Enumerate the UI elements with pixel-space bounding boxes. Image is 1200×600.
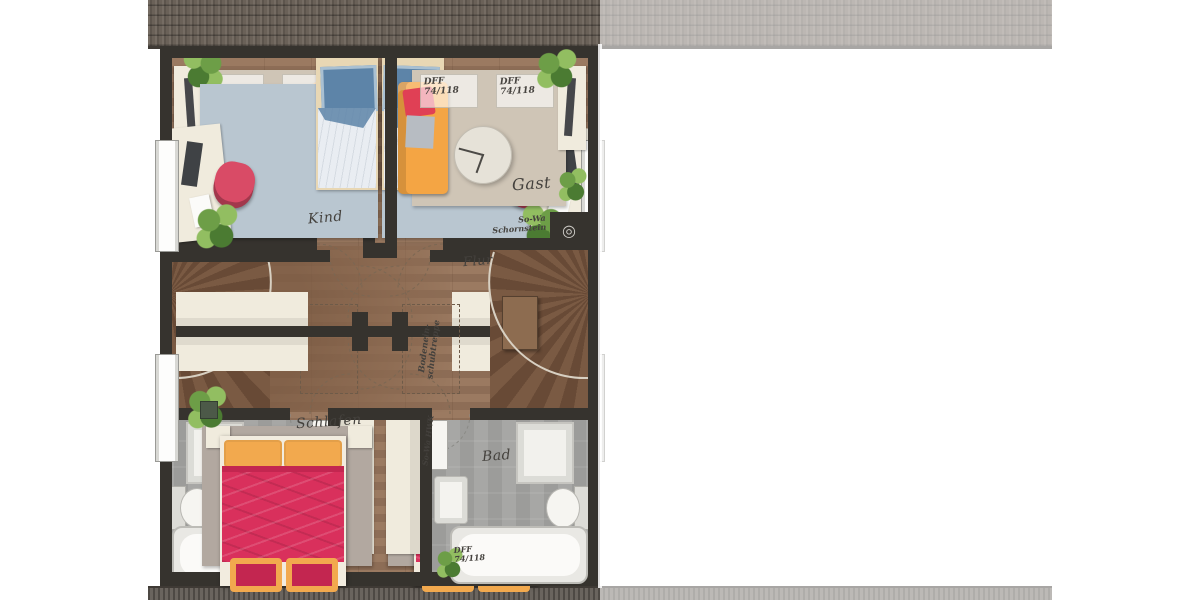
bed-duvet <box>222 466 344 562</box>
roof-window-size: 74/118 <box>424 85 459 97</box>
floor-plan-image: Bodenein- schubtreppe DFF <box>0 0 1200 600</box>
roof-window-size: 74/118 <box>500 85 535 97</box>
single-bed <box>316 58 378 190</box>
double-bed <box>220 436 346 586</box>
plant <box>558 166 590 206</box>
plant <box>194 202 244 254</box>
sofa-blanket <box>405 115 435 148</box>
wall-bad-top <box>470 408 588 420</box>
closet-cabinet-lower <box>176 337 308 371</box>
plant <box>534 48 584 92</box>
room-label-bad: Bad <box>481 447 511 465</box>
table-leg <box>459 148 485 157</box>
wall-left <box>160 46 172 586</box>
nightstand <box>348 426 372 448</box>
attic-ladder-outline <box>300 304 358 394</box>
potted-plant <box>186 384 232 434</box>
window-left-upper <box>155 140 179 252</box>
room-label-kind: Kind <box>307 209 343 228</box>
wall-closet-mid <box>176 326 408 337</box>
wall-kind-gast <box>385 58 397 250</box>
stair-landing <box>502 296 538 350</box>
window-left-lower <box>155 354 179 462</box>
wall-pillar-kind-door <box>364 243 397 258</box>
wall-gast-bottom <box>443 238 588 250</box>
party-wall-seam <box>598 44 602 588</box>
plant-pot <box>200 401 218 419</box>
roof-window-size: 74/118 <box>454 552 485 564</box>
shower-tray <box>516 422 574 484</box>
table-leg <box>476 154 485 173</box>
roof-band-top <box>148 0 1052 49</box>
roof-window-tag: DFF 74/118 <box>420 74 478 108</box>
wardrobe <box>386 420 420 554</box>
headboard-cushion <box>224 440 282 468</box>
attic-ladder-label: Bodenein- schubtreppe <box>406 312 454 384</box>
foot-pillow <box>230 558 282 592</box>
bathroom-sink <box>434 476 468 524</box>
room-label-gast: Gast <box>511 173 551 195</box>
faded-overlay <box>600 0 1052 600</box>
room-label-flur: Flur <box>462 253 493 271</box>
round-table <box>454 126 512 184</box>
bed-pillow <box>320 65 378 113</box>
roof-band-bottom <box>148 586 1052 600</box>
toilet <box>546 488 580 528</box>
chimney-vent-icon: ◎ <box>562 223 576 239</box>
headboard-cushion <box>284 440 342 468</box>
foot-pillow <box>286 558 338 592</box>
closet-cabinet-upper <box>176 292 308 326</box>
